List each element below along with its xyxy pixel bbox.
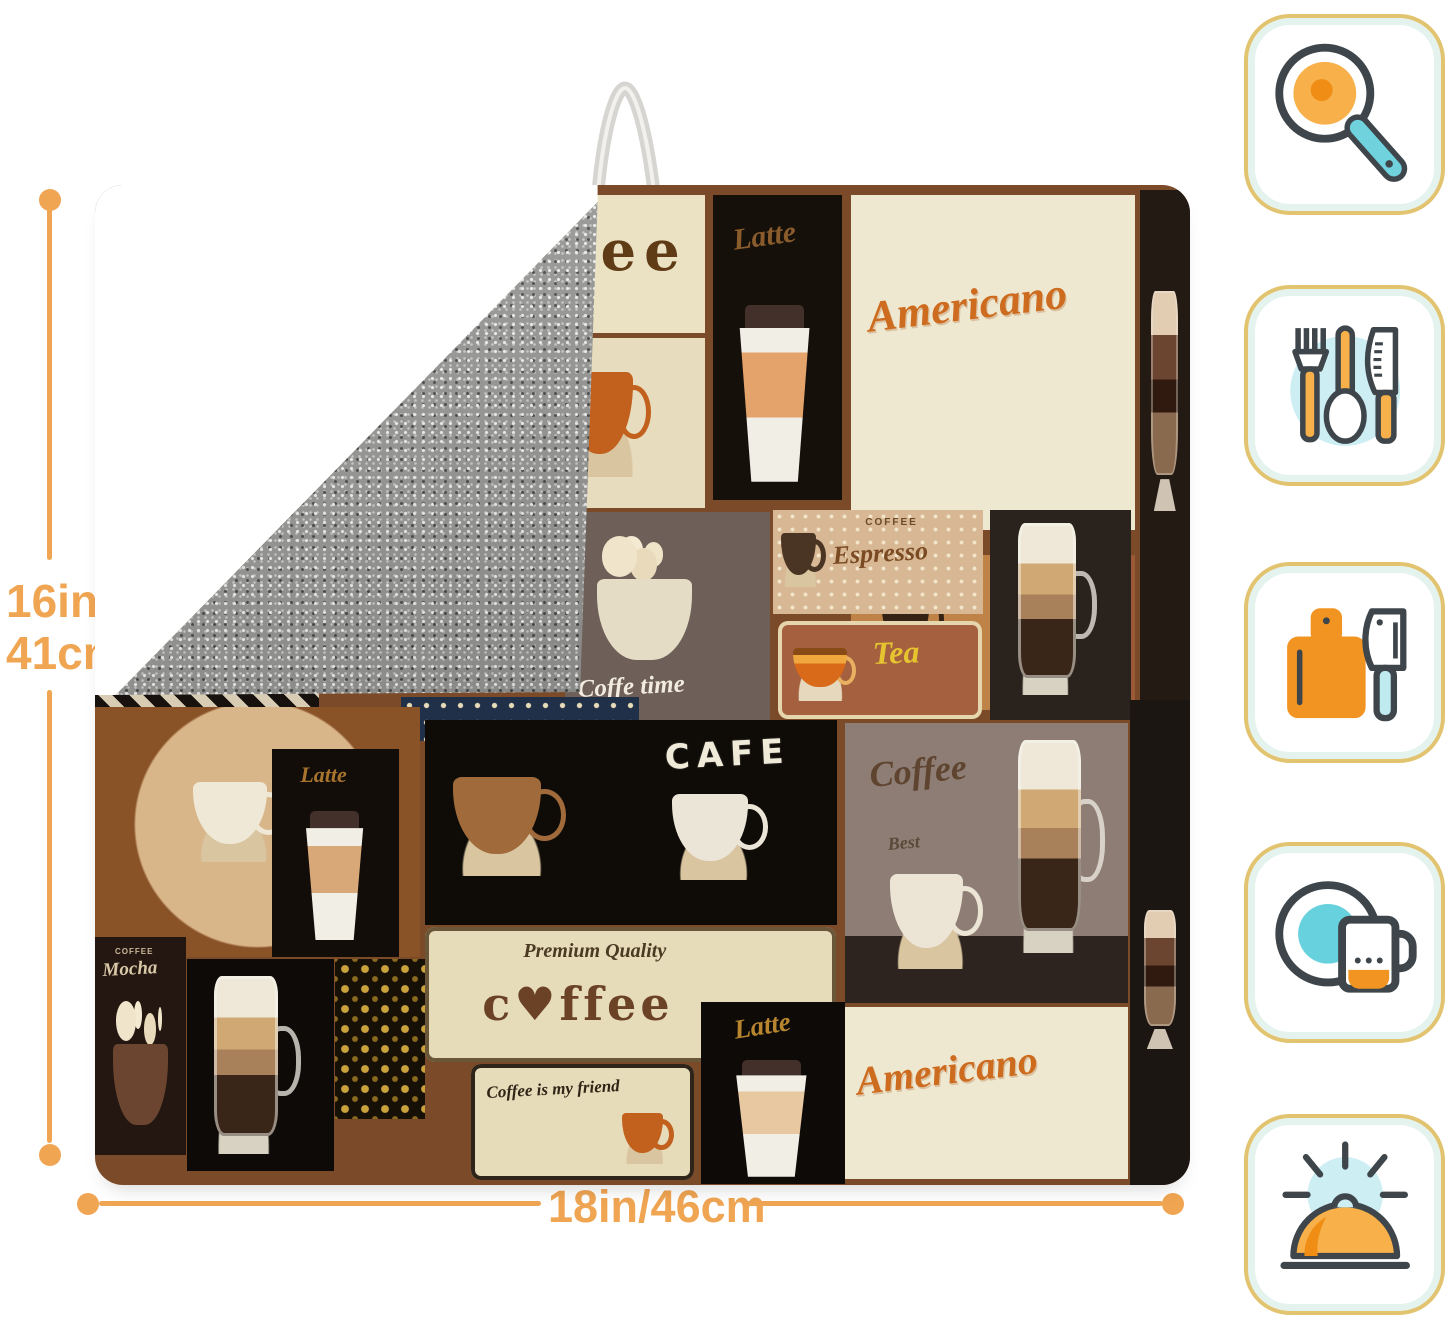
togo-art: [736, 305, 814, 482]
mat-label: Espresso: [832, 538, 929, 569]
mat-label: Mocha: [102, 958, 158, 980]
mat-tile-latte-glass-mid: [990, 510, 1131, 720]
mat-tile-cafe-board: CAFE: [425, 720, 838, 925]
whipped-art: [106, 998, 175, 1133]
mat-label: Latte: [300, 764, 346, 786]
hanging-loop: [582, 78, 668, 196]
frying-pan-icon: [1262, 32, 1419, 189]
mat-label: Premium Quality: [523, 941, 666, 961]
product-photo: 16in/ 41cm 18in/46cm CoffeeLatteAmerican…: [0, 0, 1445, 1320]
mat-tile-tea-sign: Tea: [778, 621, 982, 719]
mat-label: CAFE: [664, 734, 791, 775]
mat-tile-latte-small: Latte: [272, 749, 399, 957]
mat-tile-americano-bottom: Americano: [845, 1007, 1128, 1179]
togo-art: [732, 1060, 810, 1176]
mat-tile-parfait-strip-top: [1140, 190, 1190, 700]
mat-tile-espresso-sign: COFFEEEspresso: [773, 510, 983, 614]
parfait-art: [1144, 282, 1186, 512]
cutting-board-icon: [1262, 580, 1419, 737]
width-line-left-segment: [99, 1201, 541, 1206]
serving-cloche-icon: [1262, 1132, 1419, 1289]
mat-label: Tea: [872, 635, 920, 669]
mat-tile-latte-glass-bottomleft: [187, 959, 334, 1171]
plate-mug-icon: [1262, 860, 1419, 1017]
glassmug-art: [1015, 740, 1105, 953]
height-line-upper-segment: [47, 207, 52, 560]
cup-art: [672, 794, 771, 880]
icon-card-cutting-board: [1244, 562, 1445, 763]
mat-tile-americano-top: Americano: [851, 195, 1136, 530]
drying-mat: CoffeeLatteAmericanoCoffeehot freshCoffe…: [95, 185, 1190, 1185]
width-line-left-dot: [77, 1193, 99, 1215]
mat-tile-coffee-best: CoffeeBest: [845, 723, 1128, 1003]
icon-card-pan: [1244, 14, 1445, 215]
cutlery-icon: [1262, 303, 1419, 460]
width-dimension-label: 18in/46cm: [548, 1181, 740, 1233]
mat-label: c♥ffee: [482, 981, 673, 1027]
mat-label: Americano: [865, 271, 1069, 339]
togo-art: [303, 811, 367, 940]
width-line-right-dot: [1162, 1193, 1184, 1215]
mat-label: Coffee is my friend: [486, 1075, 625, 1102]
cup-art: [781, 533, 827, 587]
mat-tile-latte-togo: Latte: [713, 195, 842, 500]
mat-label: Latte: [732, 1008, 793, 1044]
teabowl-art: [790, 637, 855, 702]
mat-label: Americano: [854, 1040, 1040, 1102]
mat-label: Best: [887, 832, 920, 853]
mat-label: Coffee: [868, 748, 968, 792]
width-line-right-segment: [744, 1201, 1163, 1206]
mat-label: COFFEE: [115, 948, 153, 956]
icon-card-dishes: [1244, 842, 1445, 1043]
height-line-bottom-dot: [39, 1144, 61, 1166]
glassmug-art: [1015, 523, 1097, 695]
mat-label: COFFEE: [865, 518, 918, 528]
cup-art: [890, 874, 986, 969]
whipped-art: [585, 534, 704, 669]
mat-tile-latte-gold: Latte: [701, 1002, 846, 1184]
height-line-lower-segment: [47, 690, 52, 1143]
icon-card-cutlery: [1244, 285, 1445, 486]
cup-art: [453, 777, 569, 875]
mat-label: Latte: [731, 217, 798, 256]
parfait-art: [1135, 904, 1186, 1050]
icon-card-cloche: [1244, 1114, 1445, 1315]
mat-tile-gold-ornament: [335, 959, 425, 1119]
mat-tile-mocha: COFFEEMocha: [95, 937, 186, 1155]
cup-art: [622, 1113, 676, 1164]
mat-tile-parfait-strip-bottom: [1130, 700, 1190, 1185]
glassmug-art: [210, 976, 301, 1154]
mat-tile-coffee-friend: Coffee is my friend: [471, 1064, 694, 1180]
